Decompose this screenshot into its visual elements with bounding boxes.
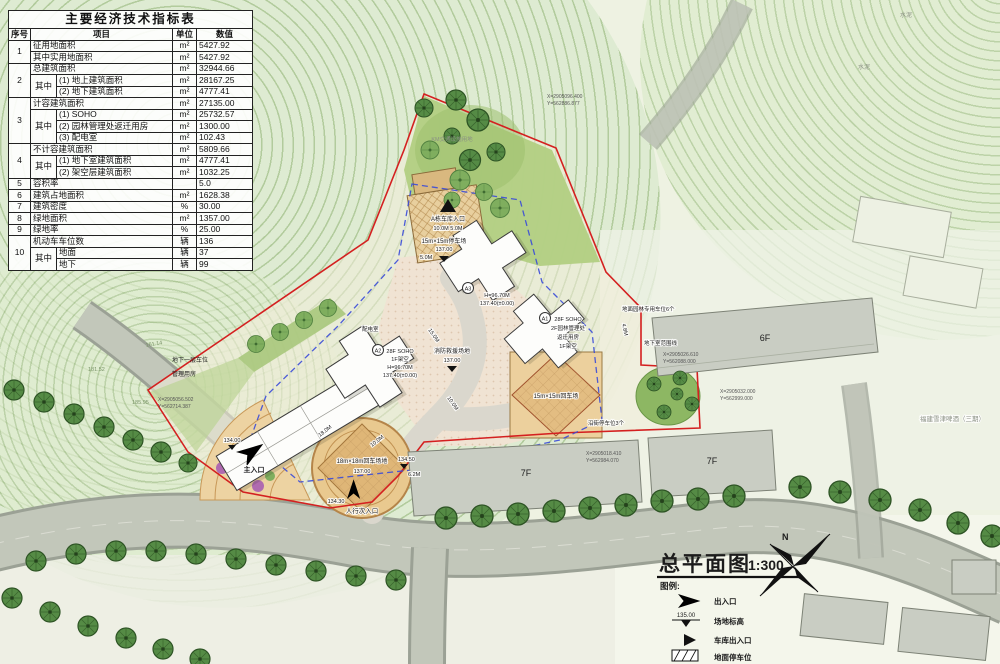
legend-garage-label: 车库出入口 xyxy=(714,635,752,645)
site-plan-page: KM交通设施用地 A栋车库入口 10.0M 5.0M 15m×15m停车场 13… xyxy=(0,0,1000,664)
cell-unit: % xyxy=(173,224,197,236)
cell-no: 6 xyxy=(9,190,31,202)
building-6f-label: 6F xyxy=(760,333,771,343)
cell-no: 4 xyxy=(9,144,31,179)
cell-item: (2) 园林管理处返迁用房 xyxy=(57,121,173,133)
a3-id: A3 xyxy=(465,287,472,293)
col-header-item: 项目 xyxy=(31,29,173,41)
cell-item: 计容建筑面积 xyxy=(31,98,173,110)
cell-item: (3) 配电室 xyxy=(57,132,173,144)
legend-elev-value: 135.00 xyxy=(677,613,696,619)
cell-value: 4777.41 xyxy=(197,155,253,167)
cement-label-2: 水泥 xyxy=(858,63,870,71)
dim-62: 6.2M xyxy=(408,472,421,478)
cell-value: 102.43 xyxy=(197,132,253,144)
cell-no: 2 xyxy=(9,63,31,98)
cell-value: 30.00 xyxy=(197,201,253,213)
cell-no: 9 xyxy=(9,224,31,236)
cell-item: 容积率 xyxy=(31,178,173,190)
table-row: 1征用地面积m²5427.92 xyxy=(9,40,253,52)
cell-value: 5427.92 xyxy=(197,52,253,64)
cell-unit xyxy=(173,178,197,190)
power-room-label: 配电室 xyxy=(362,325,379,333)
table-row: 6建筑占地面积m²1628.38 xyxy=(9,190,253,202)
cell-unit: m² xyxy=(173,63,197,75)
parking-pad-label: 15m×15m停车场 xyxy=(422,237,467,245)
table-row: 8绿地面积m²1357.00 xyxy=(9,213,253,225)
cell-unit: m² xyxy=(173,75,197,87)
beer-factory-label: 福建雪津啤酒（三期） xyxy=(920,414,985,423)
a1-use: 28F SOHO xyxy=(554,317,582,323)
a1-l2: 2F园林管理处 xyxy=(551,324,585,332)
cell-item: 征用地面积 xyxy=(31,40,173,52)
cell-value: 1300.00 xyxy=(197,121,253,133)
cell-item: (2) 架空层建筑面积 xyxy=(57,167,173,179)
basement-line-label: 地下室范围线 xyxy=(644,339,678,347)
street-parking-label: 沿街停车位3个 xyxy=(588,419,625,427)
fire-area-label: 消防救援场地 xyxy=(434,347,470,355)
cell-value: 5427.92 xyxy=(197,40,253,52)
cell-unit: m² xyxy=(173,98,197,110)
a2-elev: 137.40(±0.00) xyxy=(383,373,417,379)
cell-unit: m² xyxy=(173,52,197,64)
table-row: 7建筑密度%30.00 xyxy=(9,201,253,213)
cell-unit: m² xyxy=(173,155,197,167)
fire-area-elev: 137.00 xyxy=(444,358,461,364)
cell-item: 建筑占地面积 xyxy=(31,190,173,202)
col-header-value: 数值 xyxy=(197,29,253,41)
pedestrian-entrance-elev: 134.30 xyxy=(328,499,345,505)
table-row: 其中实用地面积m²5427.92 xyxy=(9,52,253,64)
round-turnaround-label: 18m×18m回车场地 xyxy=(337,457,388,465)
contour-elev-2: 181.52 xyxy=(88,367,105,373)
building-7f-label-b: 7F xyxy=(707,456,718,466)
table-title: 主要经济技术指标表 xyxy=(9,11,253,29)
garage-entry-label: A栋车库入口 xyxy=(431,215,465,223)
table-row: 其中地面辆37 xyxy=(9,247,253,259)
drawing-title: 总平面图 xyxy=(659,552,751,576)
cell-value: 25.00 xyxy=(197,224,253,236)
cell-item: 绿地率 xyxy=(31,224,173,236)
table-row: 10机动车车位数辆136 xyxy=(9,236,253,248)
table-row: 其中(1) 地下室建筑面积m²4777.41 xyxy=(9,155,253,167)
cell-value: 5.0 xyxy=(197,178,253,190)
legend-entry-label: 出入口 xyxy=(714,596,737,606)
a1-l4: 1F架空 xyxy=(559,342,577,350)
table-row: 4不计容建筑面积m²5809.66 xyxy=(9,144,253,156)
cell-value: 25732.57 xyxy=(197,109,253,121)
cell-mid: 其中 xyxy=(31,75,57,98)
cell-value: 37 xyxy=(197,247,253,259)
park-note-label: KM交通设施用地 xyxy=(431,135,473,143)
a1-id: A1 xyxy=(542,317,549,323)
cell-no: 3 xyxy=(9,98,31,144)
contour-elev-3: 185.95 xyxy=(132,400,149,406)
a2-use: 28F SOHO xyxy=(386,349,414,355)
col-header-no: 序号 xyxy=(9,29,31,41)
coord-y: Y=562999.000 xyxy=(720,396,753,402)
cell-value: 1628.38 xyxy=(197,190,253,202)
cell-no: 10 xyxy=(9,236,31,271)
round-turnaround-elev: 137.00 xyxy=(354,469,371,475)
main-entrance-elev: 134.00 xyxy=(224,438,241,444)
cell-value: 1032.25 xyxy=(197,167,253,179)
left-label-1: 地下一层车位 xyxy=(172,356,208,364)
cell-unit: m² xyxy=(173,190,197,202)
table-row: 9绿地率%25.00 xyxy=(9,224,253,236)
cell-value: 1357.00 xyxy=(197,213,253,225)
cell-item: (1) SOHO xyxy=(57,109,173,121)
a2-height: H=96.70M xyxy=(387,365,413,371)
coord-x: X=2905018.410 xyxy=(586,451,622,457)
parking-pad-elev: 137.00 xyxy=(436,247,453,253)
parking-pad-dim: 5.0M xyxy=(420,255,433,261)
cell-item: 绿地面积 xyxy=(31,213,173,225)
cell-value: 4777.41 xyxy=(197,86,253,98)
pedestrian-entrance-label: 人行次入口 xyxy=(346,506,379,515)
cell-mid: 其中 xyxy=(31,155,57,178)
cell-item: 不计容建筑面积 xyxy=(31,144,173,156)
north-letter: N xyxy=(782,532,789,542)
coord-y: Y=562984.070 xyxy=(586,458,619,464)
cell-unit: % xyxy=(173,201,197,213)
elev-13450-label: 134.50 xyxy=(398,457,415,463)
coord-x: X=2905056.502 xyxy=(158,397,194,403)
cell-unit: m² xyxy=(173,109,197,121)
cell-no: 5 xyxy=(9,178,31,190)
cell-unit: 辆 xyxy=(173,236,197,248)
drawing-scale: 1:300 xyxy=(748,557,784,573)
cell-unit: m² xyxy=(173,144,197,156)
cell-mid: 其中 xyxy=(31,109,57,144)
coord-x: X=2905032.000 xyxy=(720,389,756,395)
a2-l2: 1F架空 xyxy=(391,355,409,363)
a3-height: H=96.70M xyxy=(484,293,510,299)
cell-item: (2) 地下建筑面积 xyxy=(57,86,173,98)
cell-unit: m² xyxy=(173,213,197,225)
a1-l3: 返迁用房 xyxy=(557,333,580,341)
table-row: 其中(1) 地上建筑面积m²28167.25 xyxy=(9,75,253,87)
table-row: 5容积率5.0 xyxy=(9,178,253,190)
coord-y: Y=562886.877 xyxy=(547,101,580,107)
contour-elev-1: 161.14 xyxy=(145,340,163,349)
table-row: 3计容建筑面积m²27135.00 xyxy=(9,98,253,110)
table-row: 其中(1) SOHOm²25732.57 xyxy=(9,109,253,121)
cell-unit: m² xyxy=(173,86,197,98)
cell-value: 99 xyxy=(197,259,253,271)
cell-value: 27135.00 xyxy=(197,98,253,110)
table-row: 2总建筑面积m²32944.66 xyxy=(9,63,253,75)
main-entrance-label: 主入口 xyxy=(244,465,265,474)
coord-y: Y=562088.000 xyxy=(663,359,696,365)
cell-item: (1) 地上建筑面积 xyxy=(57,75,173,87)
cell-mid: 其中 xyxy=(31,247,57,270)
cell-unit: 辆 xyxy=(173,247,197,259)
coord-x: X=2905026.610 xyxy=(663,352,699,358)
cell-item: 机动车车位数 xyxy=(31,236,173,248)
cell-no: 8 xyxy=(9,213,31,225)
right-turnaround-label: 15m×15m回车场 xyxy=(534,392,579,400)
cell-unit: 辆 xyxy=(173,259,197,271)
cell-item: 地下 xyxy=(57,259,173,271)
legend-heading: 图例: xyxy=(660,581,680,591)
cell-value: 28167.25 xyxy=(197,75,253,87)
building-7f-label-a: 7F xyxy=(521,468,532,478)
cell-value: 136 xyxy=(197,236,253,248)
indicators-table: 主要经济技术指标表 序号 项目 单位 数值 1征用地面积m²5427.92 其中… xyxy=(8,10,253,271)
garage-entry-dims: 10.0M 5.0M xyxy=(433,226,462,232)
cement-label-1: 水泥 xyxy=(900,11,912,19)
cell-item: 总建筑面积 xyxy=(31,63,173,75)
garden-parking-label: 地面园林专用车位6个 xyxy=(622,305,675,313)
cell-item: 建筑密度 xyxy=(31,201,173,213)
legend-parking-label: 地面停车位 xyxy=(714,652,752,662)
legend-elev-label: 场地标高 xyxy=(714,616,744,626)
cell-no: 1 xyxy=(9,40,31,63)
cell-item: 地面 xyxy=(57,247,173,259)
cell-value: 32944.66 xyxy=(197,63,253,75)
col-header-unit: 单位 xyxy=(173,29,197,41)
cell-no: 7 xyxy=(9,201,31,213)
cell-unit: m² xyxy=(173,40,197,52)
cell-value: 5809.66 xyxy=(197,144,253,156)
a2-id: A2 xyxy=(375,349,382,355)
cell-unit: m² xyxy=(173,167,197,179)
coord-x: X=2905096.400 xyxy=(547,94,583,100)
left-label-2: 管理用房 xyxy=(172,370,196,378)
cell-unit: m² xyxy=(173,132,197,144)
coord-y: Y=562714.387 xyxy=(158,404,191,410)
a3-elev: 137.40(±0.00) xyxy=(480,301,514,307)
cell-unit: m² xyxy=(173,121,197,133)
cell-item: (1) 地下室建筑面积 xyxy=(57,155,173,167)
cell-item: 其中实用地面积 xyxy=(31,52,173,64)
